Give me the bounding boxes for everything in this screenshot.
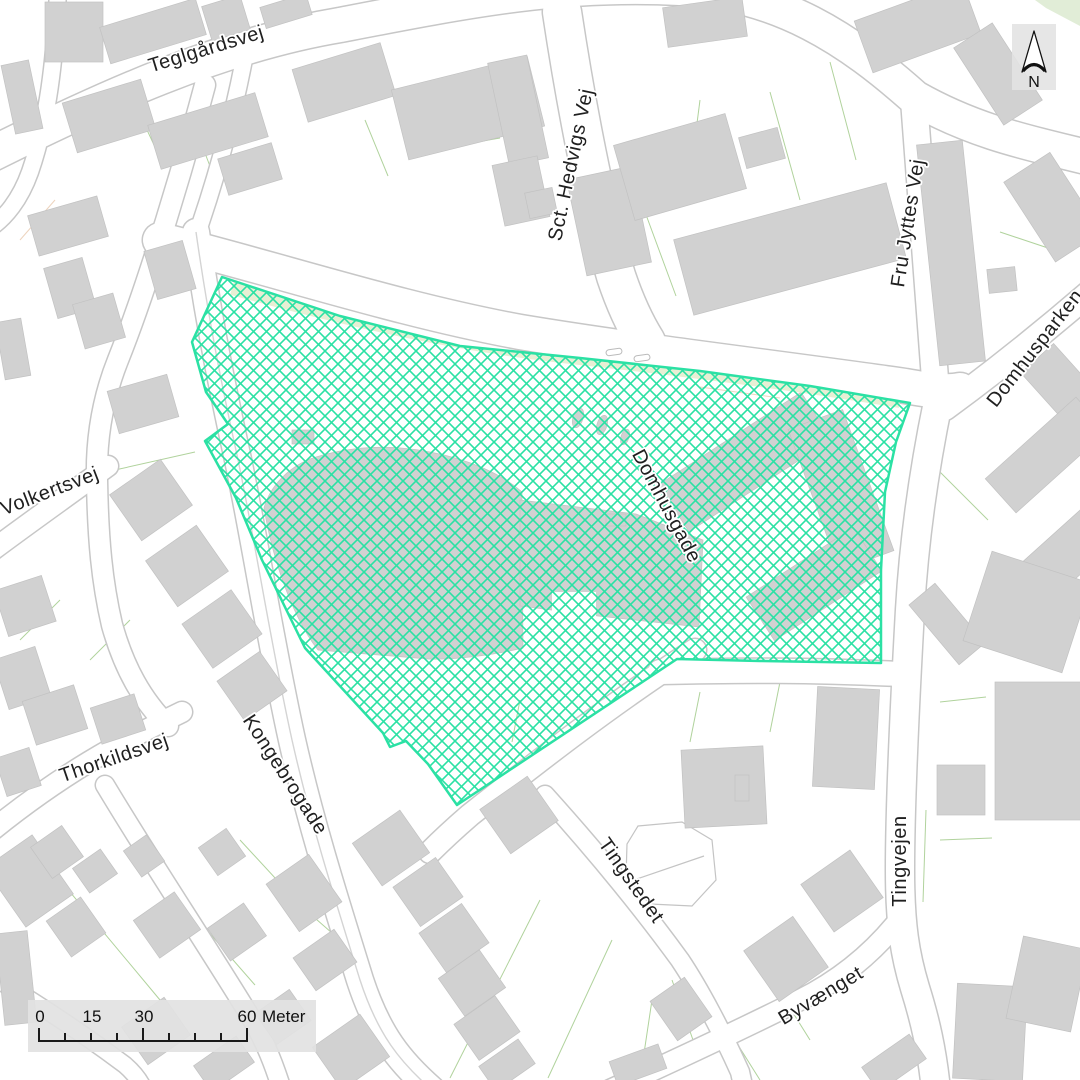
scale-label-30: 30 [135, 1007, 154, 1026]
scale-label-0: 0 [35, 1007, 44, 1026]
scale-unit-label: Meter [262, 1007, 306, 1026]
scale-bar: 0 15 30 60 Meter [28, 1000, 316, 1052]
north-arrow: N [1012, 24, 1056, 91]
scale-label-60: 60 [238, 1007, 257, 1026]
map-canvas[interactable]: Teglgårdsvej Sct. Hedvigs Vej Fru Jyttes… [0, 0, 1080, 1080]
street-label-tingvejen: Tingvejen [889, 815, 911, 906]
map-viewport[interactable]: Teglgårdsvej Sct. Hedvigs Vej Fru Jyttes… [0, 0, 1080, 1080]
scale-label-15: 15 [83, 1007, 102, 1026]
north-label: N [1028, 74, 1040, 91]
